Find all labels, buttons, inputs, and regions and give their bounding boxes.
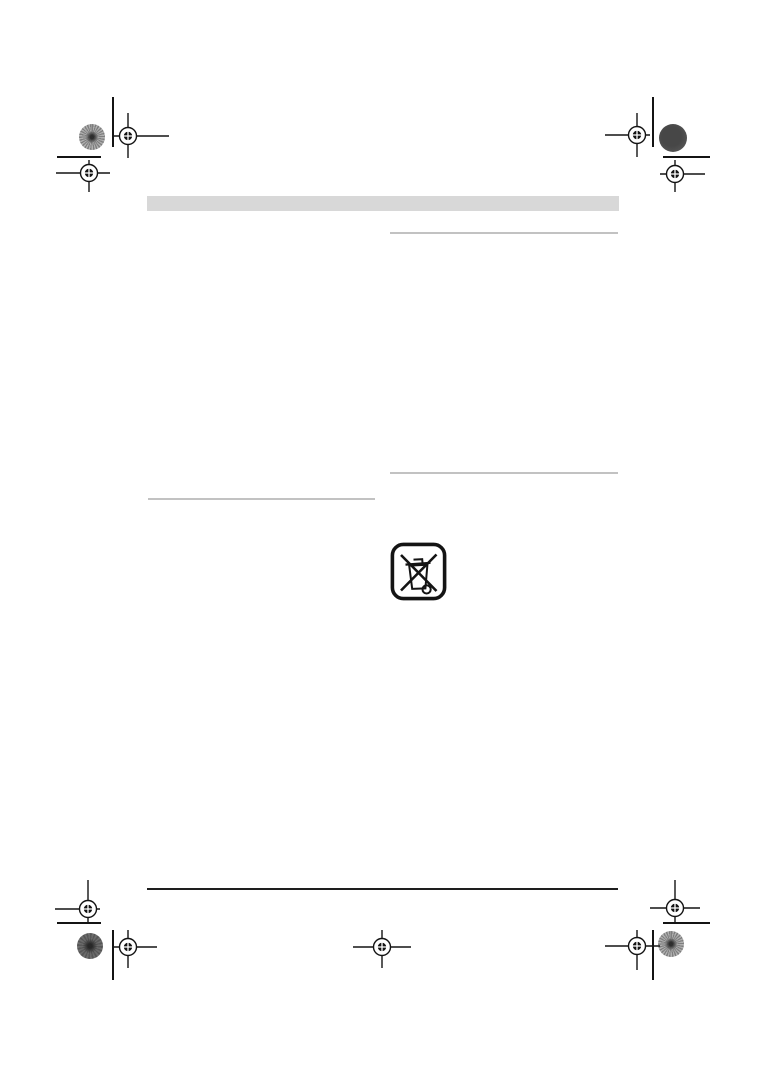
crop-mark-line [652,97,654,147]
weee-crossed-out-wheelie-bin-icon [390,542,447,601]
document-page [0,0,765,1082]
right-column-rule [390,232,618,234]
section-header-band [147,196,619,211]
footer-rule [147,888,618,890]
left-column-rule [148,498,375,500]
registration-mark-icon [592,916,682,976]
right-column-rule [390,472,618,474]
registration-mark-icon [630,144,720,204]
registration-mark-icon [83,917,173,977]
registration-mark-icon [337,917,427,977]
registration-mark-icon [44,143,134,203]
